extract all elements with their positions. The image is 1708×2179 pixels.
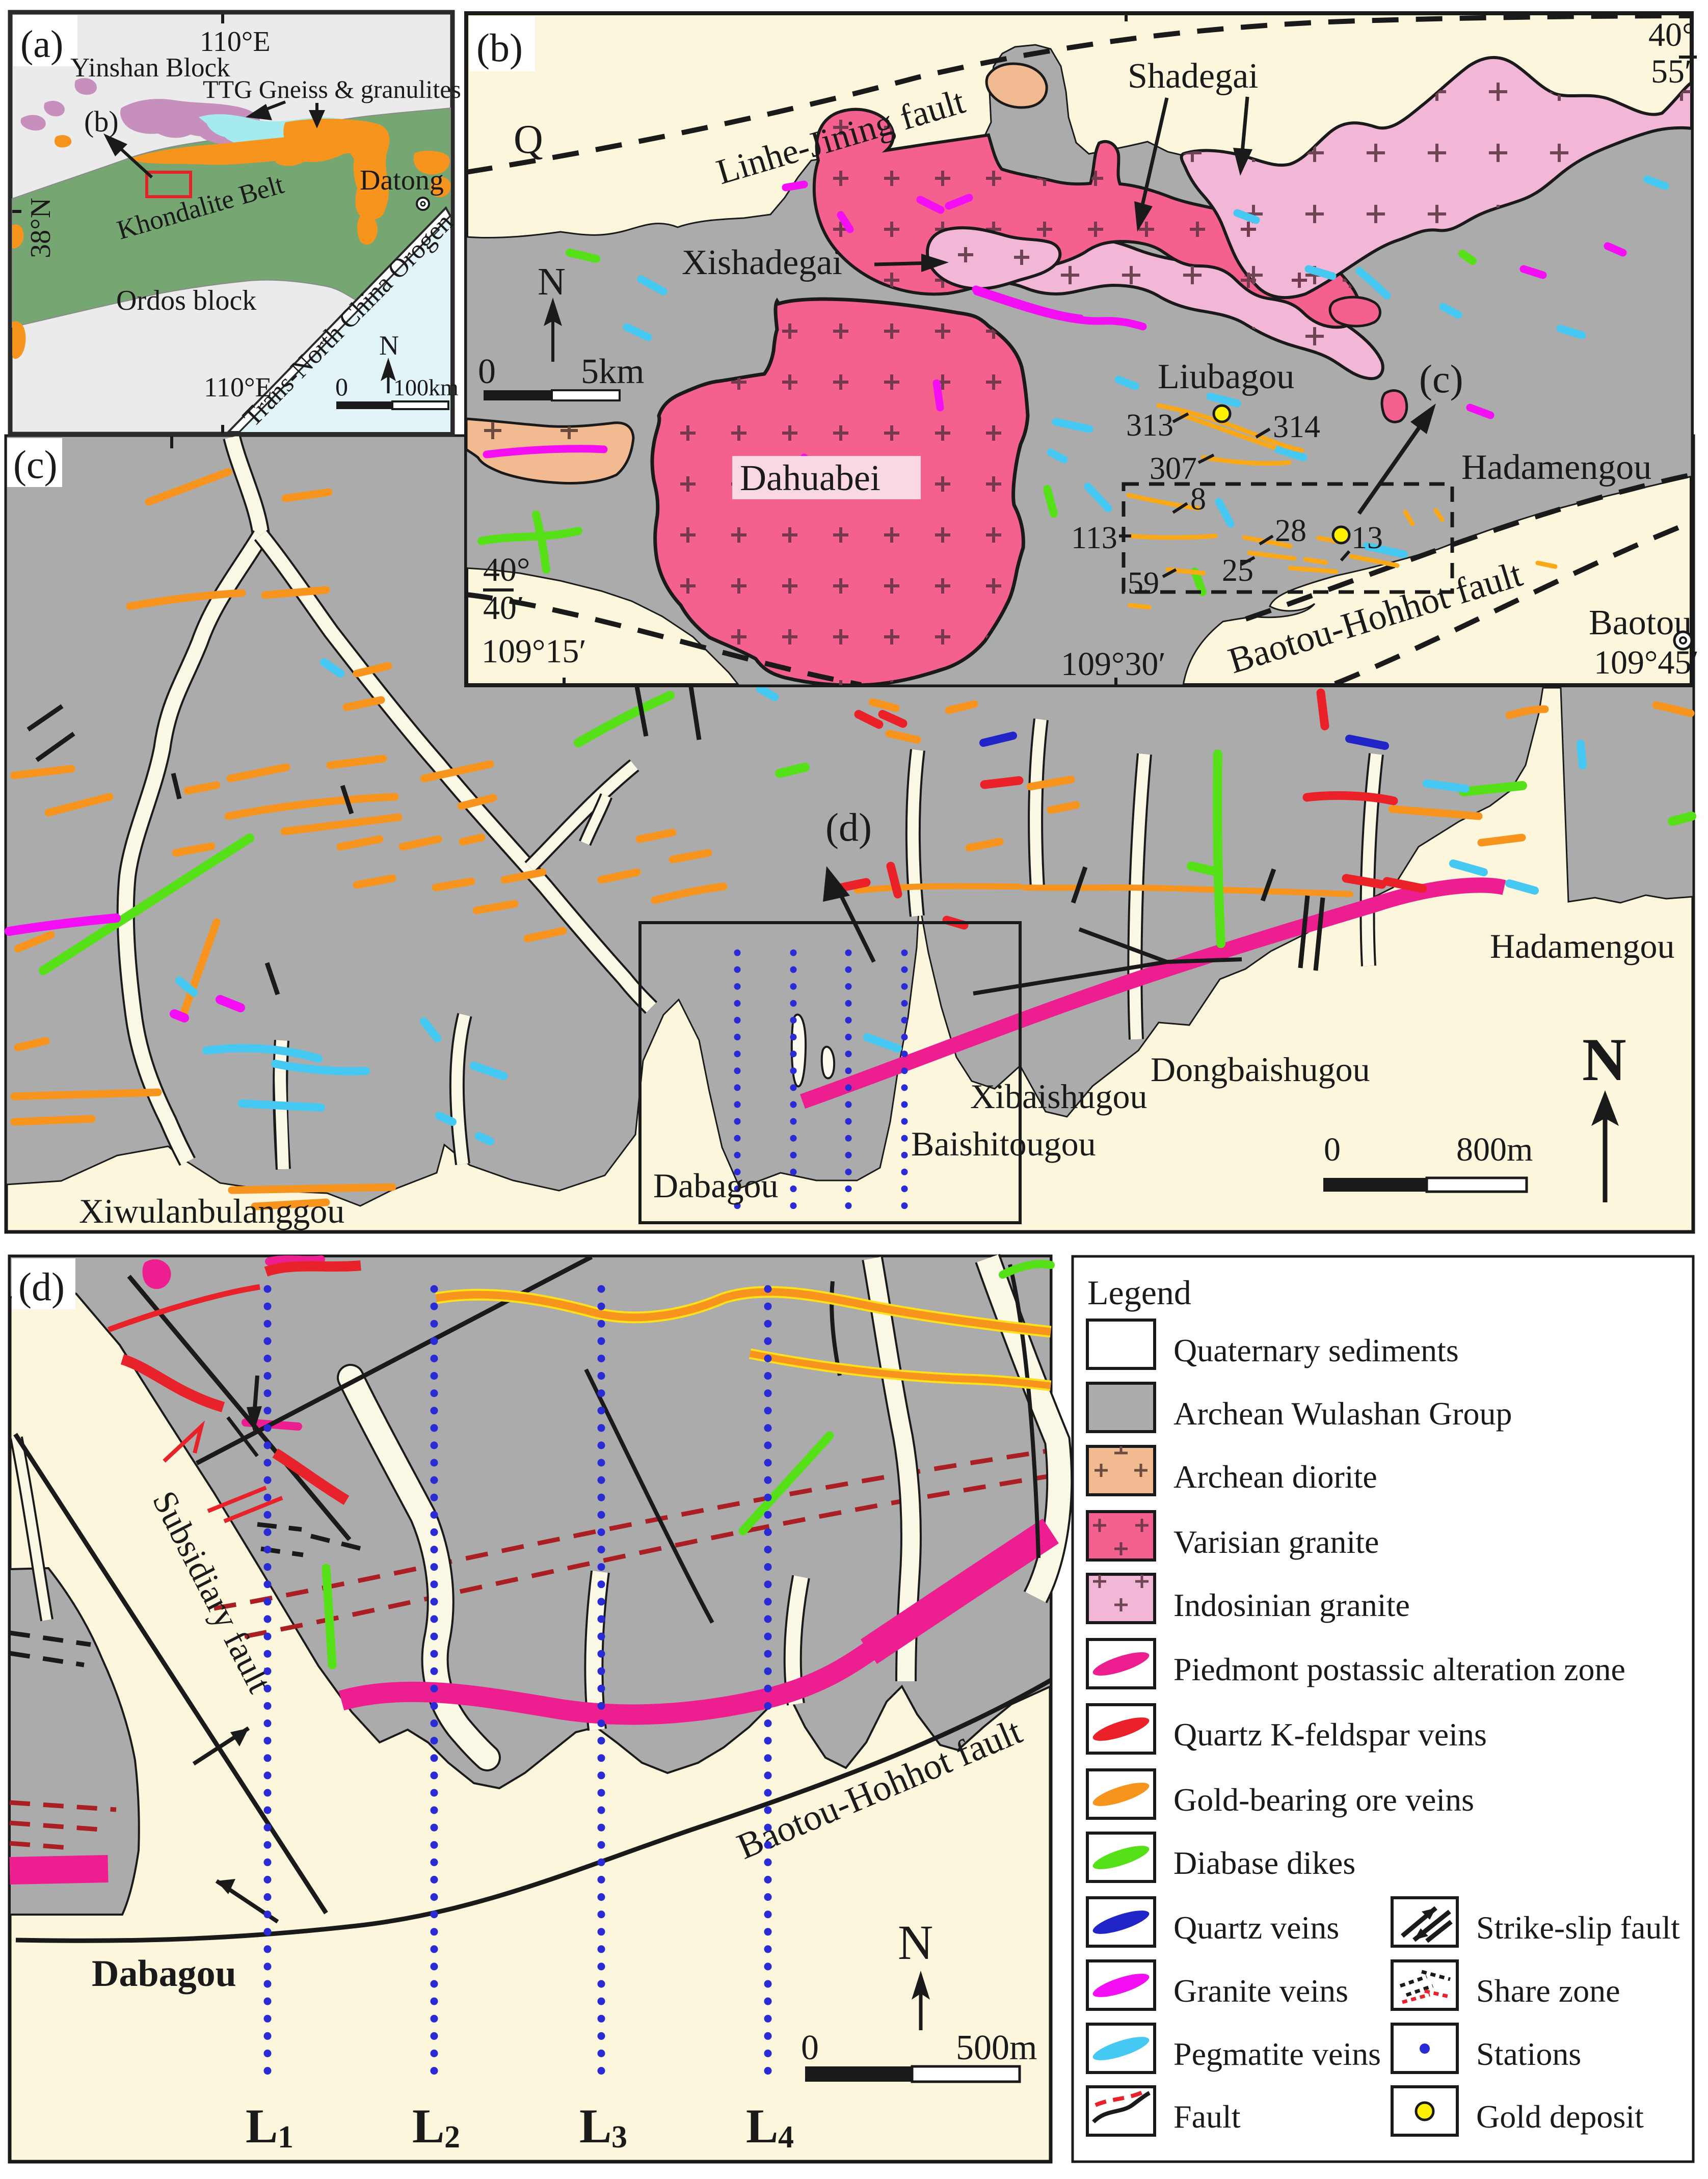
svg-text:25: 25 xyxy=(1222,553,1253,588)
svg-text:1: 1 xyxy=(278,2120,293,2155)
svg-text:Legend: Legend xyxy=(1087,1273,1191,1312)
svg-text:Hadamengou: Hadamengou xyxy=(1490,927,1675,965)
svg-text:(d): (d) xyxy=(18,1265,65,1309)
svg-text:L: L xyxy=(746,2099,778,2153)
svg-text:Quartz veins: Quartz veins xyxy=(1173,1909,1339,1946)
svg-text:Varisian granite: Varisian granite xyxy=(1173,1524,1379,1560)
svg-text:Fault: Fault xyxy=(1173,2099,1241,2135)
svg-text:L: L xyxy=(579,2099,611,2153)
svg-text:(c): (c) xyxy=(13,442,58,487)
svg-text:2: 2 xyxy=(444,2120,460,2155)
svg-text:109°45′: 109°45′ xyxy=(1594,644,1699,681)
svg-text:Archean diorite: Archean diorite xyxy=(1173,1459,1377,1495)
svg-text:0: 0 xyxy=(335,372,348,401)
svg-text:28: 28 xyxy=(1275,514,1306,548)
svg-text:59: 59 xyxy=(1128,566,1159,601)
svg-text:(b): (b) xyxy=(84,105,119,138)
svg-text:Diabase dikes: Diabase dikes xyxy=(1173,1845,1355,1881)
svg-text:Dongbaishugou: Dongbaishugou xyxy=(1151,1050,1370,1089)
svg-text:500m: 500m xyxy=(956,2028,1037,2067)
svg-text:Gold-bearing ore veins: Gold-bearing ore veins xyxy=(1173,1782,1474,1818)
svg-text:313: 313 xyxy=(1126,408,1173,443)
svg-text:Datong: Datong xyxy=(360,165,444,196)
svg-text:3: 3 xyxy=(611,2120,627,2155)
svg-text:Dabagou: Dabagou xyxy=(653,1166,778,1205)
svg-text:4: 4 xyxy=(778,2120,794,2155)
svg-text:TTG Gneiss & granulites: TTG Gneiss & granulites xyxy=(203,75,461,103)
svg-text:Ordos block: Ordos block xyxy=(116,285,256,316)
svg-text:Xiwulanbulanggou: Xiwulanbulanggou xyxy=(79,1192,344,1230)
svg-text:109°15′: 109°15′ xyxy=(482,633,586,670)
svg-text:Stations: Stations xyxy=(1476,2036,1581,2072)
svg-text:(a): (a) xyxy=(20,23,63,66)
svg-text:Shadegai: Shadegai xyxy=(1128,57,1259,96)
svg-text:40′: 40′ xyxy=(483,589,524,627)
svg-text:113: 113 xyxy=(1071,521,1117,555)
svg-text:100km: 100km xyxy=(393,374,459,400)
svg-text:38°N: 38°N xyxy=(25,198,57,258)
svg-text:Q: Q xyxy=(514,117,543,162)
svg-text:N: N xyxy=(898,1915,933,1970)
svg-text:40°: 40° xyxy=(1648,16,1695,53)
svg-text:Pegmatite veins: Pegmatite veins xyxy=(1173,2036,1381,2072)
svg-text:Dabagou: Dabagou xyxy=(92,1953,236,1995)
svg-text:N: N xyxy=(538,260,566,303)
svg-text:(c): (c) xyxy=(1419,357,1463,401)
svg-text:Indosinian granite: Indosinian granite xyxy=(1173,1587,1410,1623)
svg-text:8: 8 xyxy=(1190,482,1206,517)
svg-text:L: L xyxy=(412,2099,444,2153)
svg-text:307: 307 xyxy=(1150,451,1197,486)
svg-text:N: N xyxy=(1582,1026,1626,1093)
svg-text:(d): (d) xyxy=(825,805,872,849)
svg-text:40°: 40° xyxy=(483,551,530,588)
svg-text:N: N xyxy=(379,330,399,361)
svg-text:Xishadegai: Xishadegai xyxy=(682,243,842,282)
svg-text:Granite veins: Granite veins xyxy=(1173,1973,1348,2009)
svg-text:Gold deposit: Gold deposit xyxy=(1476,2099,1644,2135)
svg-text:5km: 5km xyxy=(581,352,644,391)
svg-text:800m: 800m xyxy=(1456,1131,1533,1168)
svg-text:13: 13 xyxy=(1351,521,1383,555)
svg-text:Baishitougou: Baishitougou xyxy=(911,1124,1096,1163)
svg-text:Strike-slip fault: Strike-slip fault xyxy=(1476,1909,1680,1946)
svg-text:Dahuabei: Dahuabei xyxy=(740,458,880,498)
svg-text:314: 314 xyxy=(1273,410,1320,444)
svg-text:Quartz K-feldspar veins: Quartz K-feldspar veins xyxy=(1173,1716,1487,1753)
svg-text:Xibaishugou: Xibaishugou xyxy=(970,1077,1147,1116)
svg-text:Hadamengou: Hadamengou xyxy=(1461,448,1651,487)
svg-text:109°30′: 109°30′ xyxy=(1061,645,1166,683)
svg-text:L: L xyxy=(246,2099,278,2153)
svg-text:Piedmont postassic alteration: Piedmont postassic alteration zone xyxy=(1173,1651,1625,1687)
svg-text:Liubagou: Liubagou xyxy=(1158,357,1294,396)
svg-text:110°E: 110°E xyxy=(204,372,272,402)
svg-text:0: 0 xyxy=(478,352,496,391)
svg-text:Archean Wulashan Group: Archean Wulashan Group xyxy=(1173,1395,1512,1432)
svg-text:Share zone: Share zone xyxy=(1476,1973,1620,2009)
svg-text:0: 0 xyxy=(1324,1131,1341,1168)
svg-text:0: 0 xyxy=(801,2028,819,2067)
svg-text:(b): (b) xyxy=(476,25,523,70)
svg-text:Quaternary sediments: Quaternary sediments xyxy=(1173,1332,1459,1368)
